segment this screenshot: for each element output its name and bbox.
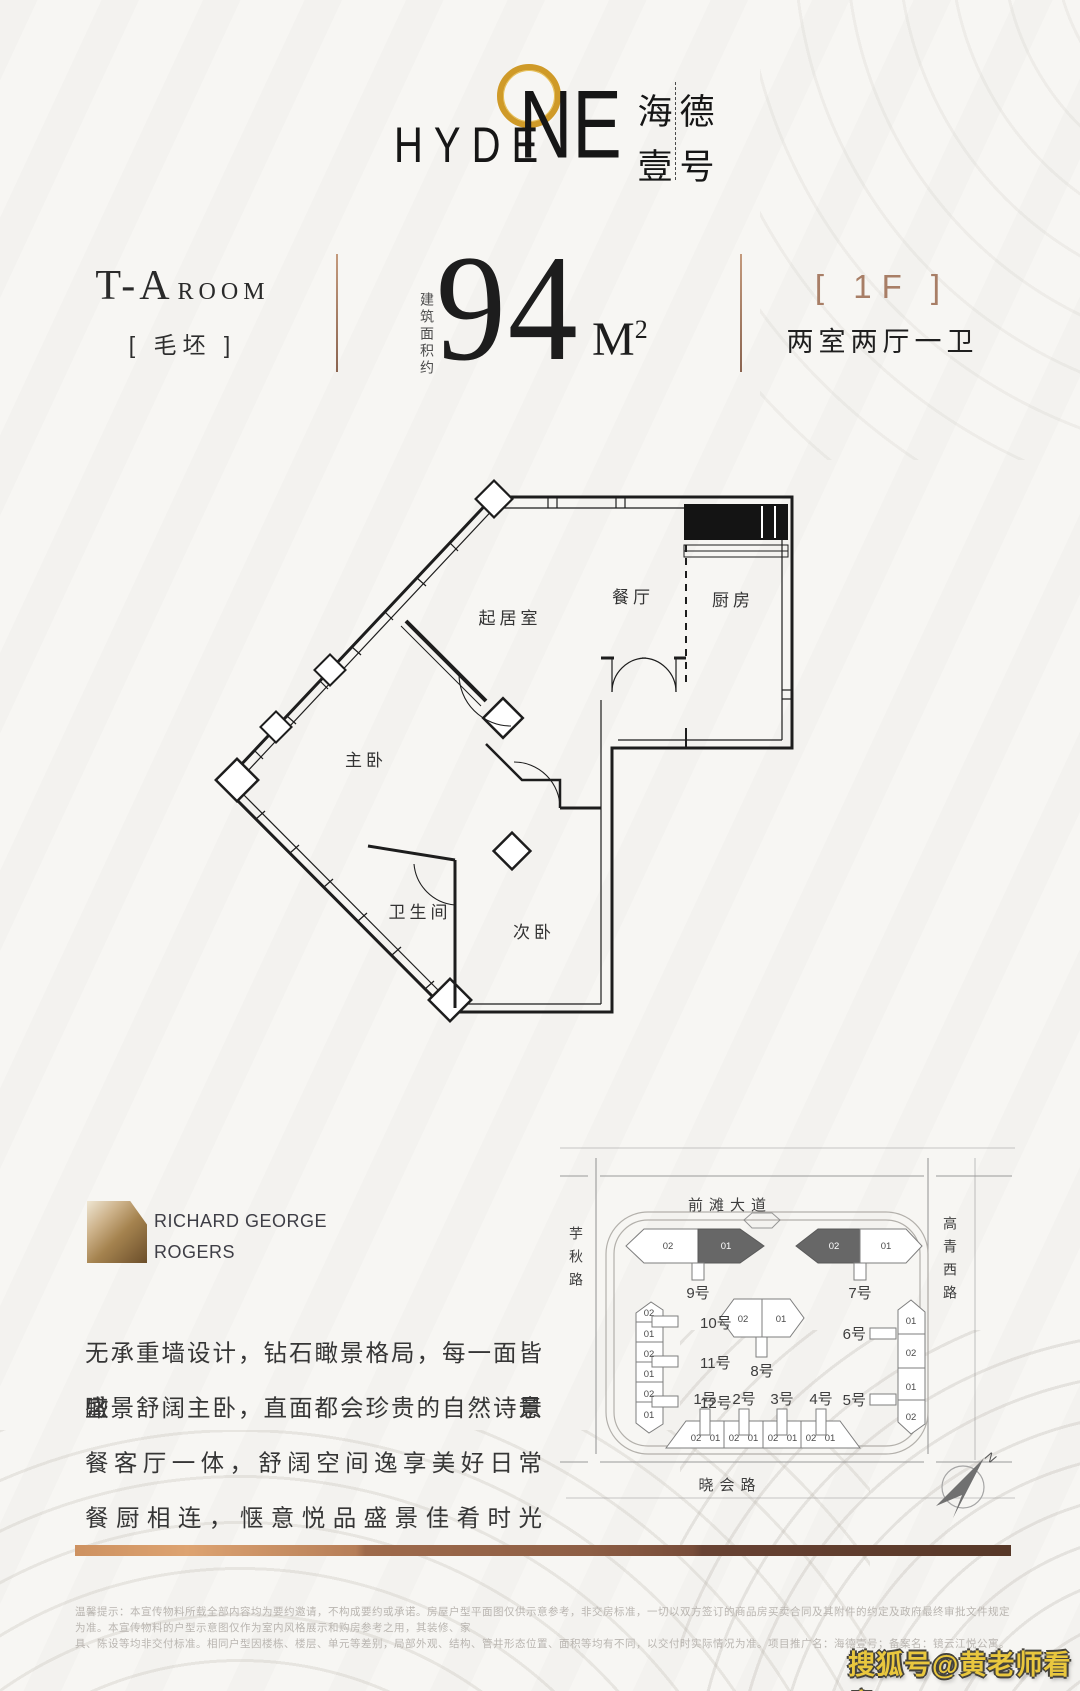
unit-label: 01 xyxy=(710,1433,721,1444)
room-label-second-bedroom: 次卧 xyxy=(513,923,555,942)
unit-label: 02 xyxy=(729,1433,740,1444)
road-label-north: 前滩大道 xyxy=(660,1194,800,1215)
unit-label: 02 xyxy=(806,1433,817,1444)
building-label: 3号 xyxy=(770,1391,793,1408)
unit-label: 02 xyxy=(906,1412,917,1423)
room-label-bathroom: 卫生间 xyxy=(389,903,452,922)
unit-label: 02 xyxy=(691,1433,702,1444)
unit-label: 01 xyxy=(721,1241,732,1252)
unit-label: 02 xyxy=(738,1314,749,1325)
unit-label: 02 xyxy=(644,1308,655,1319)
unit-label: 01 xyxy=(644,1369,655,1380)
brand-cn-divider xyxy=(675,82,676,180)
title-divider-right xyxy=(740,254,742,372)
floor-plan-room-labels: 起居室 餐厅 厨房 主卧 卫生间 次卧 xyxy=(345,588,754,942)
layout-text: 两室两厅一卫 xyxy=(755,320,1010,359)
watermark-sohu-account: 搜狐号@黄老师看房 xyxy=(848,1643,1080,1691)
area-value: 94 xyxy=(436,232,580,384)
description-line: 无承重墙设计，钻石瞰景格局，每一面皆盛景 xyxy=(85,1326,543,1381)
room-label-master: 主卧 xyxy=(345,751,387,770)
building-label: 8号 xyxy=(750,1363,773,1380)
north-label: N xyxy=(982,1449,999,1467)
unit-label: 02 xyxy=(644,1389,655,1400)
description-paragraph: 无承重墙设计，钻石瞰景格局，每一面皆盛景 瞰景舒阔主卧，直面都会珍贵的自然诗意 … xyxy=(85,1326,543,1546)
unit-label: 01 xyxy=(881,1241,892,1252)
building-label: 2号 xyxy=(732,1391,755,1408)
room-label-living: 起居室 xyxy=(479,609,542,628)
title-divider-left xyxy=(336,254,338,372)
compass-icon: N xyxy=(936,1449,999,1518)
unit-label: 01 xyxy=(644,1410,655,1421)
room-condition: [ 毛坯 ] xyxy=(70,326,295,360)
brand-chinese-name: 海 德 壹 号 xyxy=(634,84,718,180)
background-swirl-top xyxy=(760,0,1080,460)
description-line: 餐厨相连，惬意悦品盛景佳肴时光 xyxy=(85,1491,543,1546)
room-label-kitchen: 厨房 xyxy=(712,591,754,610)
area-label: 建筑面积约 xyxy=(417,292,437,377)
brand-latin-ne: NE xyxy=(519,70,622,181)
description-line: 瞰景舒阔主卧，直面都会珍贵的自然诗意 xyxy=(85,1381,543,1436)
copper-divider-bar xyxy=(75,1545,1011,1556)
unit-label: 01 xyxy=(825,1433,836,1444)
building-label: 5号 xyxy=(843,1392,866,1409)
room-code: T-A xyxy=(95,263,173,309)
unit-label: 01 xyxy=(644,1329,655,1340)
building-label: 4号 xyxy=(809,1391,832,1408)
road-label-south: 晓会路 xyxy=(665,1474,795,1495)
brand-cn-char: 海 xyxy=(634,84,676,135)
brand-cn-char: 德 xyxy=(676,84,718,135)
building-label: 7号 xyxy=(848,1285,871,1302)
unit-label: 01 xyxy=(748,1433,759,1444)
brand-cn-char: 壹 xyxy=(634,139,676,190)
unit-label: 02 xyxy=(663,1241,674,1252)
unit-label: 01 xyxy=(906,1316,917,1327)
building-label: 9号 xyxy=(686,1285,709,1302)
building-label: 1号 xyxy=(693,1391,716,1408)
unit-label: 02 xyxy=(906,1348,917,1359)
poster-page: HYDE NE 海 德 壹 号 T-A ROOM [ 毛坯 ] 建筑面积约 94… xyxy=(0,0,1080,1691)
unit-label: 02 xyxy=(829,1241,840,1252)
building-label: 11号 xyxy=(700,1355,731,1372)
area-unit: M2 xyxy=(592,312,648,367)
floor-tag: [ 1F ] xyxy=(755,268,1010,306)
room-word: ROOM xyxy=(178,279,270,305)
building-label: 10号 xyxy=(700,1315,732,1332)
unit-label: 01 xyxy=(906,1382,917,1393)
floor-plan: 起居室 餐厅 厨房 主卧 卫生间 次卧 xyxy=(190,478,890,1038)
floor-plan-walls xyxy=(216,481,792,1022)
unit-label: 01 xyxy=(787,1433,798,1444)
room-type-title: T-A ROOM xyxy=(70,262,295,310)
description-line: 餐客厅一体，舒阔空间逸享美好日常 xyxy=(85,1436,543,1491)
brand-cn-char: 号 xyxy=(676,139,718,190)
unit-label: 02 xyxy=(768,1433,779,1444)
building-label: 6号 xyxy=(843,1326,866,1343)
architect-name: RICHARD GEORGE ROGERS xyxy=(154,1206,327,1268)
road-label-east: 高青西路 xyxy=(940,1216,960,1308)
unit-label: 01 xyxy=(776,1314,787,1325)
unit-label: 02 xyxy=(644,1349,655,1360)
road-label-west: 芋秋路 xyxy=(566,1226,586,1295)
room-label-dining: 餐厅 xyxy=(612,588,654,607)
